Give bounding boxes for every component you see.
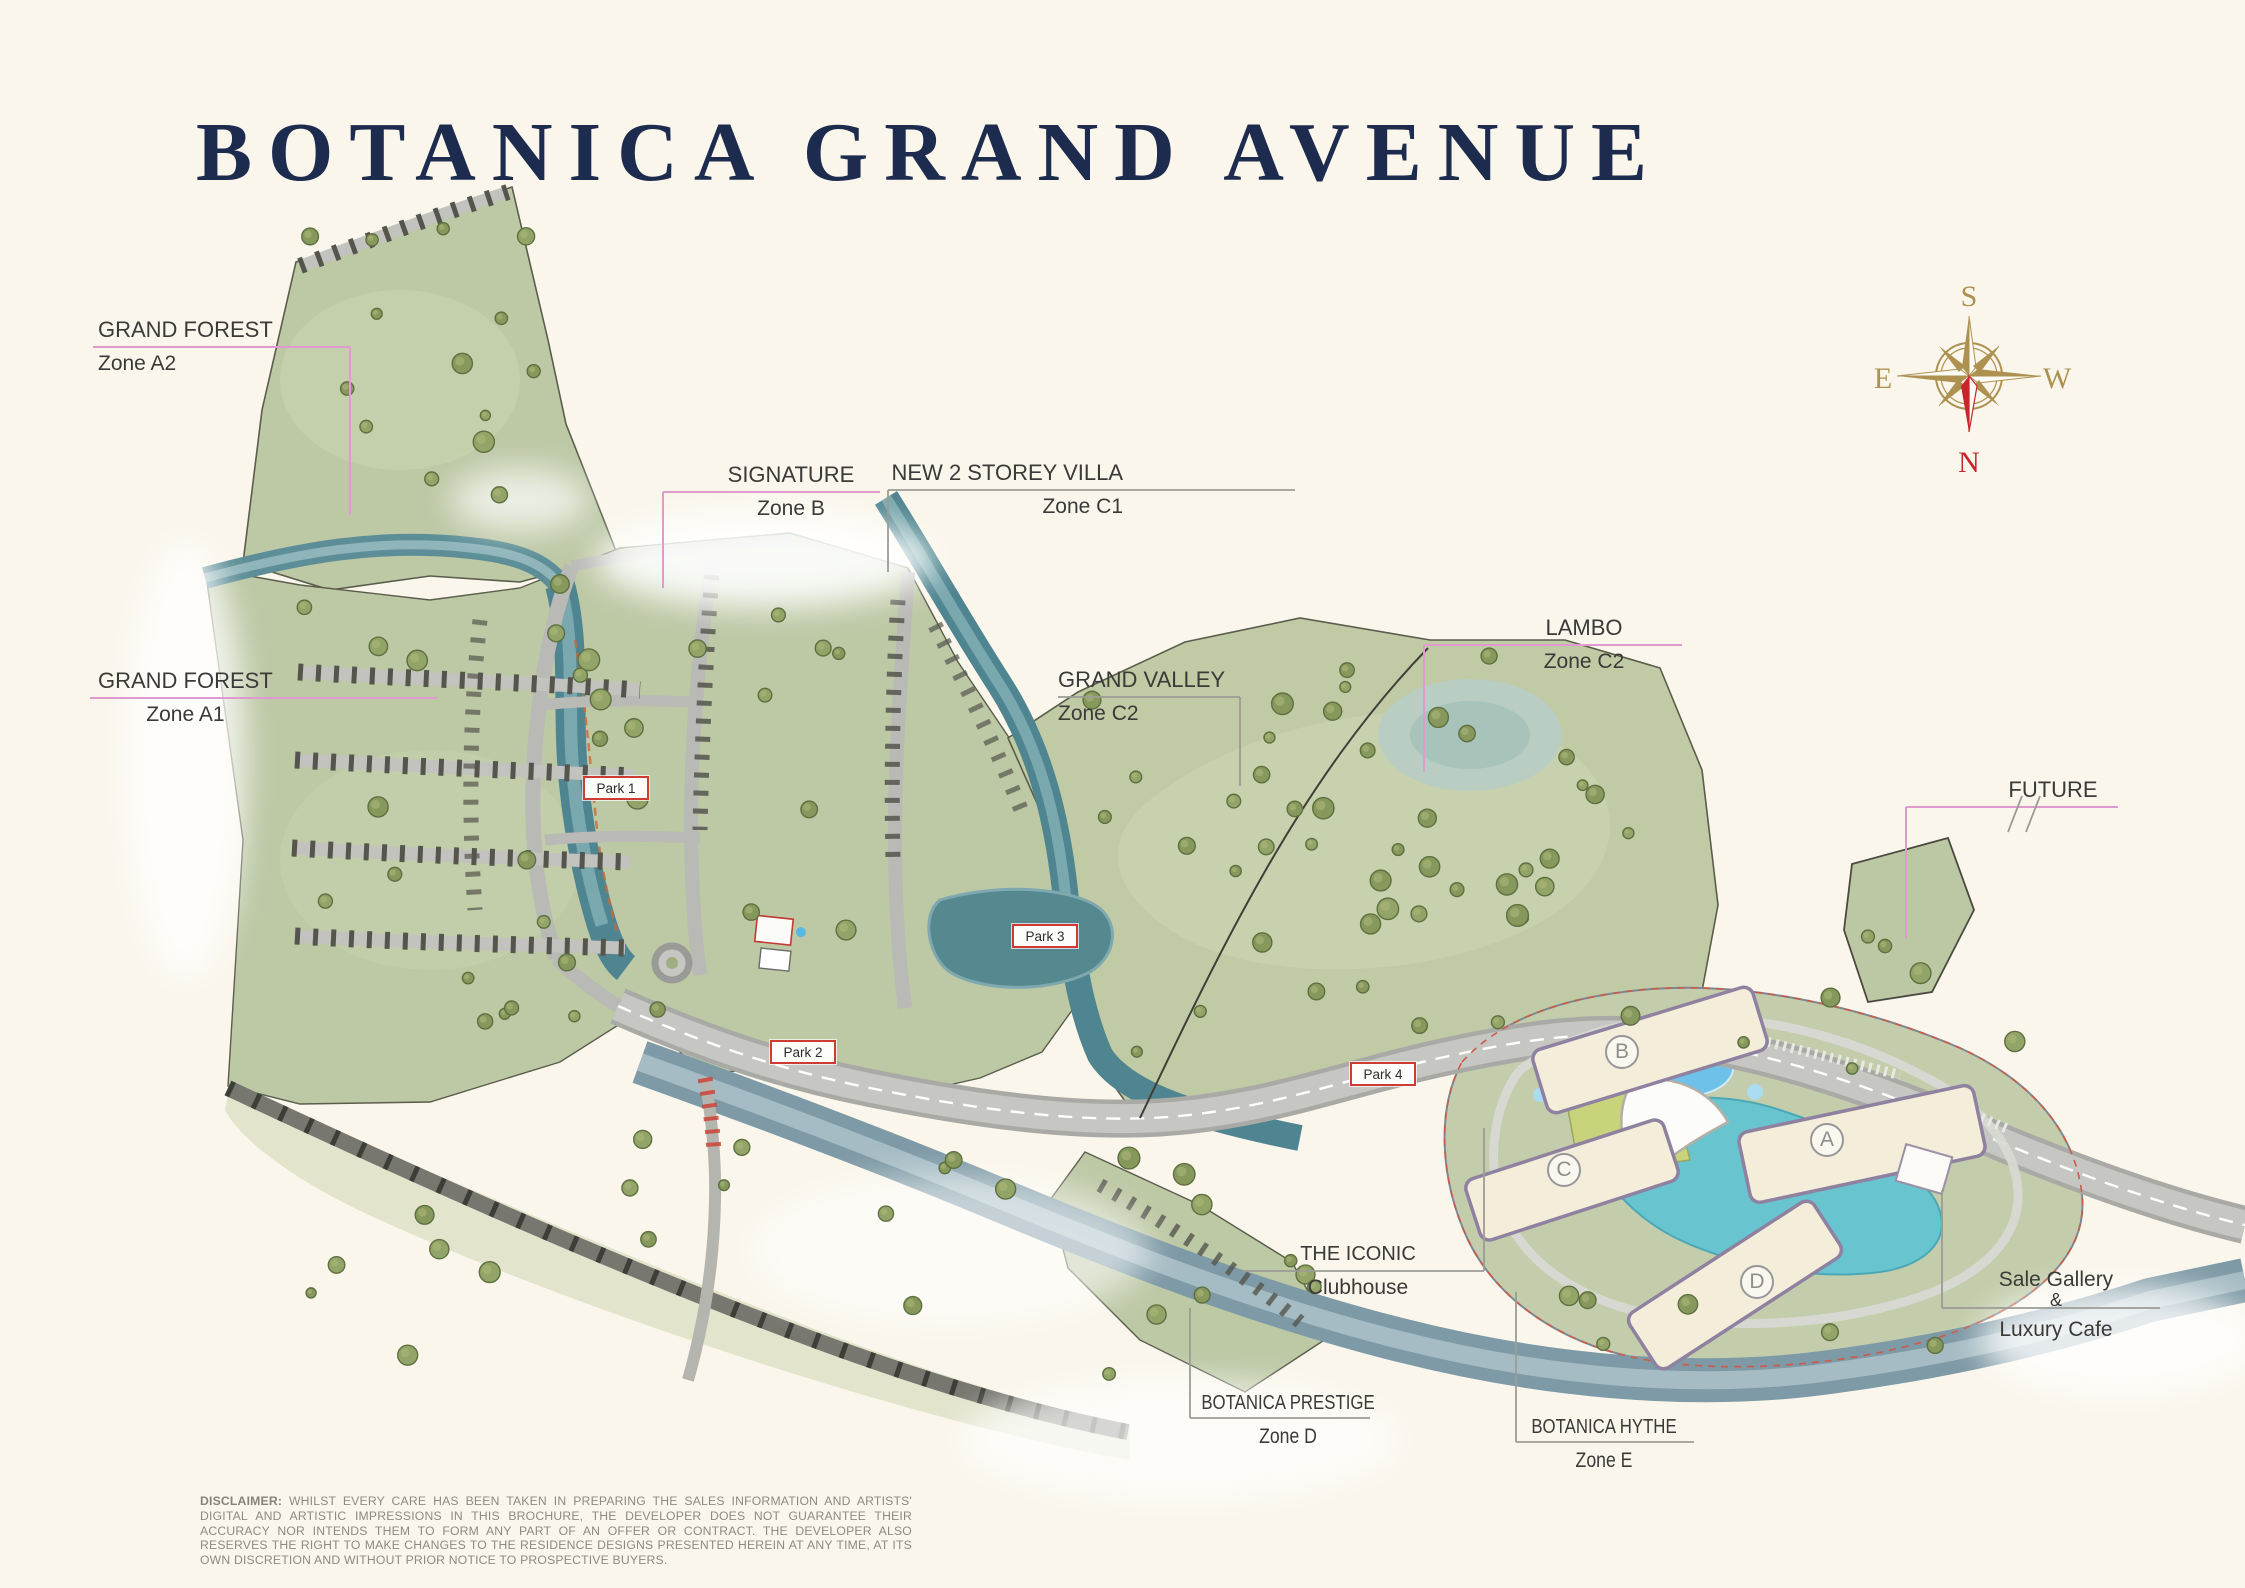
zone-name: GRAND FOREST [98, 669, 273, 693]
park-tag-3: Park 3 [1012, 924, 1078, 948]
zone-label-future: FUTURE [2008, 778, 2097, 812]
site-plan-map: S E W N [0, 0, 2245, 1588]
zone-code: Zone C2 [1544, 650, 1625, 674]
zone-name: FUTURE [2008, 778, 2097, 802]
park-tag-1: Park 1 [583, 776, 649, 800]
zone-label-botanica-prestige-d: BOTANICA PRESTIGE Zone D [1201, 1391, 1374, 1449]
compass-rose: S E W N [1874, 280, 2072, 479]
zone-label-the-iconic: THE ICONIC Clubhouse [1300, 1242, 1416, 1300]
zone-label-lambo-c2: LAMBO Zone C2 [1544, 616, 1625, 674]
zone-name: THE ICONIC [1300, 1242, 1416, 1266]
zone-name: GRAND VALLEY [1058, 668, 1225, 692]
park-tag-4: Park 4 [1350, 1062, 1416, 1086]
zone-label-new-2-storey-villa-c1: NEW 2 STOREY VILLA Zone C1 [892, 461, 1124, 519]
zone-name: BOTANICA PRESTIGE [1201, 1391, 1374, 1415]
compass-north: N [1958, 446, 1980, 479]
zone-code: Zone C2 [1058, 702, 1225, 726]
brochure-page: S E W N BOTANICA GRAND AVENUE GRAND FORE… [0, 0, 2245, 1588]
zone-name: BOTANICA HYTHE [1531, 1415, 1676, 1439]
disclaimer-label: DISCLAIMER: [200, 1494, 282, 1508]
zone-label-signature-b: SIGNATURE Zone B [728, 463, 855, 521]
compass-star [1897, 316, 2041, 432]
zone-code: Zone C1 [892, 495, 1124, 519]
compass-east: E [1874, 362, 1892, 395]
zone-label-grand-valley-c2: GRAND VALLEY Zone C2 [1058, 668, 1225, 726]
zone-name: LAMBO [1544, 616, 1625, 640]
building-badge-b: B [1605, 1035, 1639, 1069]
zone-label-grand-forest-a1: GRAND FOREST Zone A1 [98, 669, 273, 727]
park-tag-2: Park 2 [770, 1040, 836, 1064]
zone-code: Zone B [728, 497, 855, 521]
page-title: BOTANICA GRAND AVENUE [196, 104, 1663, 201]
zone-name: NEW 2 STOREY VILLA [892, 461, 1124, 485]
zone-name: GRAND FOREST [98, 318, 273, 342]
compass-west: W [2043, 362, 2072, 395]
label-sale-gallery: Sale Gallery & Luxury Cafe [1999, 1269, 2113, 1341]
zone-code: Zone D [1201, 1425, 1374, 1449]
compass-south: S [1961, 280, 1978, 313]
building-badge-a: A [1810, 1123, 1844, 1157]
zone-name: SIGNATURE [728, 463, 855, 487]
zone-label-grand-forest-a2: GRAND FOREST Zone A2 [98, 318, 273, 376]
building-badge-c: C [1547, 1153, 1581, 1187]
zone-code: Zone A1 [98, 703, 273, 727]
zone-code: Zone E [1531, 1449, 1676, 1473]
sale-gallery-line2: Luxury Cafe [1999, 1319, 2113, 1341]
building-badge-d: D [1740, 1265, 1774, 1299]
sale-gallery-amp: & [1999, 1291, 2113, 1309]
disclaimer-text: DISCLAIMER: WHILST EVERY CARE HAS BEEN T… [200, 1494, 912, 1568]
sale-gallery-line1: Sale Gallery [1999, 1269, 2113, 1291]
zone-label-botanica-hythe-e: BOTANICA HYTHE Zone E [1531, 1415, 1676, 1473]
zone-code: Zone A2 [98, 352, 273, 376]
zone-code: Clubhouse [1300, 1276, 1416, 1300]
